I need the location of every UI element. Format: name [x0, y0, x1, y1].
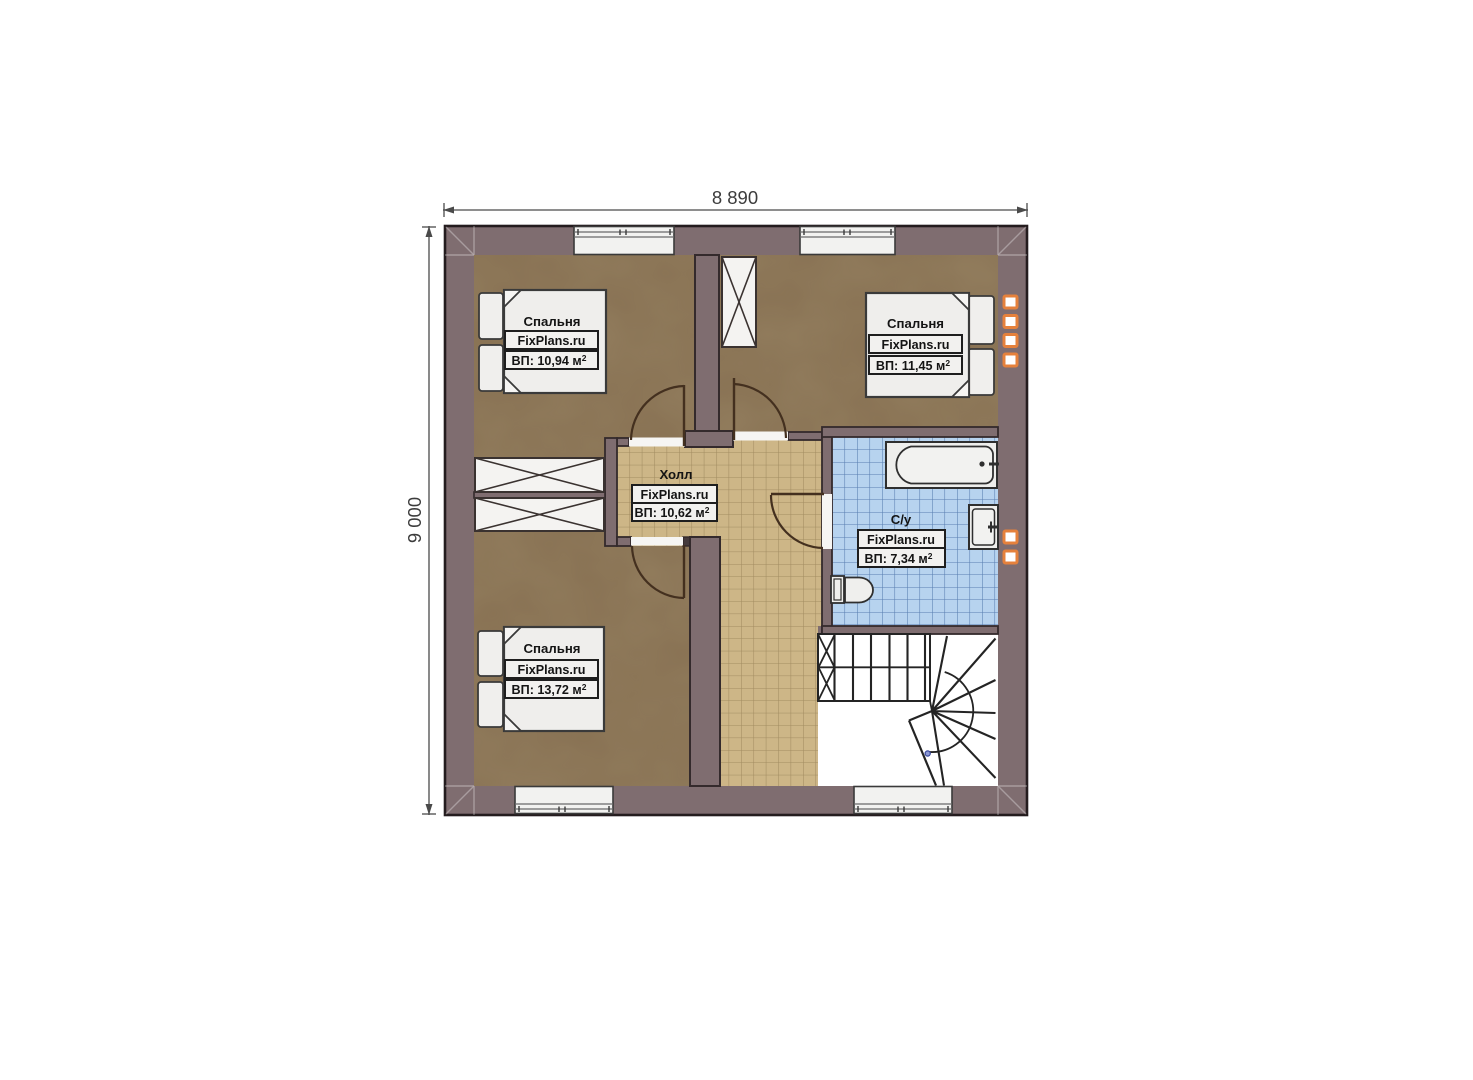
svg-text:ВП: 13,72 м2: ВП: 13,72 м2 — [512, 682, 587, 697]
svg-text:9 000: 9 000 — [404, 497, 425, 543]
svg-text:FixPlans.ru: FixPlans.ru — [867, 533, 935, 547]
svg-text:ВП: 11,45 м2: ВП: 11,45 м2 — [876, 358, 950, 373]
svg-text:ВП: 10,94 м2: ВП: 10,94 м2 — [512, 353, 587, 368]
svg-text:FixPlans.ru: FixPlans.ru — [882, 338, 950, 352]
svg-text:Спальня: Спальня — [524, 314, 581, 329]
svg-text:Холл: Холл — [659, 467, 692, 482]
svg-text:FixPlans.ru: FixPlans.ru — [641, 488, 709, 502]
svg-text:FixPlans.ru: FixPlans.ru — [518, 663, 586, 677]
svg-text:ВП: 7,34 м2: ВП: 7,34 м2 — [865, 551, 933, 566]
svg-text:Спальня: Спальня — [524, 641, 581, 656]
svg-text:ВП: 10,62 м2: ВП: 10,62 м2 — [635, 505, 710, 520]
svg-text:8 890: 8 890 — [712, 187, 758, 208]
svg-text:FixPlans.ru: FixPlans.ru — [518, 334, 586, 348]
svg-text:С/у: С/у — [891, 512, 912, 527]
svg-text:Спальня: Спальня — [887, 316, 944, 331]
